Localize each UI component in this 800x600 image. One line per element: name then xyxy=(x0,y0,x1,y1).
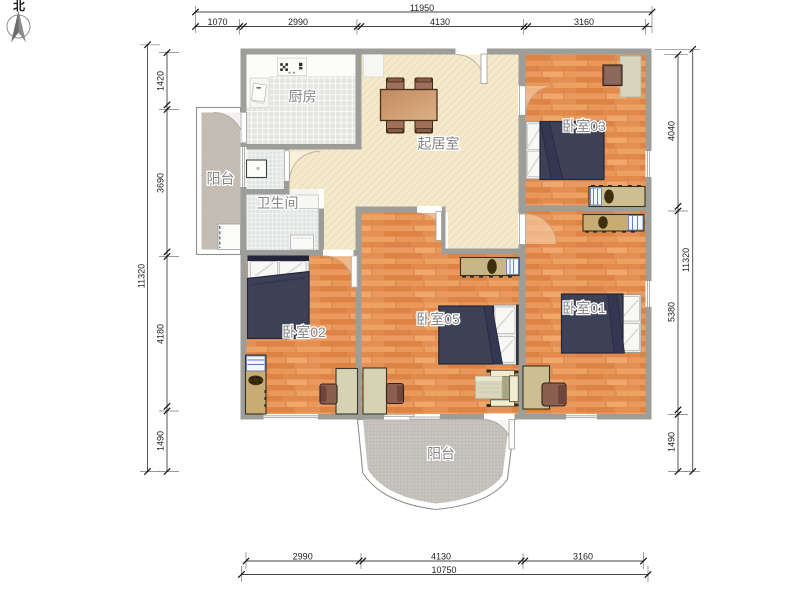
svg-text:卧室02: 卧室02 xyxy=(282,324,326,340)
svg-text:北: 北 xyxy=(13,0,25,13)
svg-text:5380: 5380 xyxy=(667,302,677,322)
svg-text:1070: 1070 xyxy=(207,17,227,27)
svg-text:3160: 3160 xyxy=(574,17,594,27)
svg-text:1420: 1420 xyxy=(156,71,166,91)
svg-text:起居室: 起居室 xyxy=(418,136,460,152)
svg-text:阳台: 阳台 xyxy=(427,446,455,462)
svg-text:1490: 1490 xyxy=(667,432,677,452)
svg-text:2990: 2990 xyxy=(293,552,313,562)
svg-text:10750: 10750 xyxy=(431,565,456,575)
svg-text:卫生间: 卫生间 xyxy=(257,195,299,211)
svg-text:2990: 2990 xyxy=(288,17,308,27)
svg-text:4130: 4130 xyxy=(431,552,451,562)
svg-text:11320: 11320 xyxy=(681,248,691,272)
svg-text:卧室03: 卧室03 xyxy=(562,118,606,134)
svg-text:4180: 4180 xyxy=(156,324,166,344)
svg-text:3690: 3690 xyxy=(156,173,166,193)
svg-text:1490: 1490 xyxy=(156,431,166,451)
svg-text:阳台: 阳台 xyxy=(207,171,235,187)
svg-text:卧室05: 卧室05 xyxy=(416,311,460,327)
svg-text:4130: 4130 xyxy=(430,17,450,27)
svg-text:11950: 11950 xyxy=(410,3,434,13)
svg-text:卧室01: 卧室01 xyxy=(562,300,606,316)
svg-text:11320: 11320 xyxy=(137,264,147,288)
svg-text:厨房: 厨房 xyxy=(289,89,317,105)
svg-text:4040: 4040 xyxy=(667,121,677,141)
svg-text:3160: 3160 xyxy=(573,552,593,562)
